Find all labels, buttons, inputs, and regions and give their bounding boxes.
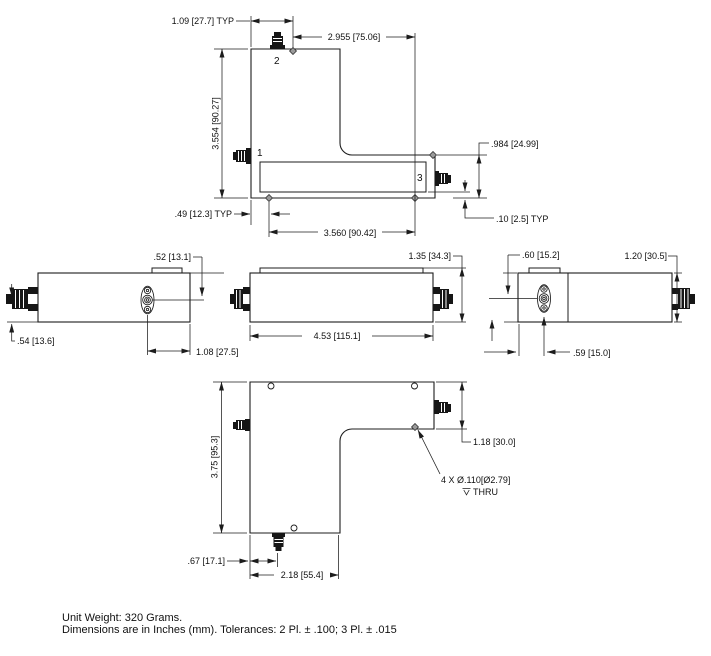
dimension-top-width: 2.955 [75.06] [293, 32, 415, 236]
side-view-left: .52 [13.1] .54 [13.6] 1.08 [27.5] [6, 252, 239, 357]
notes-block: Unit Weight: 320 Grams. Dimensions are i… [62, 612, 397, 636]
dimension-conn-offset: .59 [15.0] [484, 317, 611, 358]
sma-connector-side [230, 287, 250, 311]
dimension-conn-offset: .67 [17.1] [187, 535, 277, 579]
feedthru-connector-face [538, 285, 551, 313]
hole-note-line1: 4 X Ø.110[Ø2.79] [441, 475, 510, 485]
dimension-conn-top: .60 [15.2] [503, 250, 560, 294]
side-view-center: 1.35 [34.3] 4.53 [115.1] [230, 251, 466, 341]
body-outline [250, 273, 433, 322]
hole-marker [266, 195, 273, 202]
screw-hole [412, 383, 418, 389]
side-view-right: .60 [15.2] 1.20 [30.5] .59 [15.0] [484, 250, 695, 358]
dim-label: .54 [13.6] [17, 336, 55, 346]
dimension-hole-span: 3.560 [90.42] [269, 228, 415, 238]
sma-connector-bottom [272, 533, 285, 551]
note-unit-weight: Unit Weight: 320 Grams. [62, 612, 182, 624]
dim-label: 1.35 [34.3] [408, 251, 451, 261]
sma-connector-port1 [233, 148, 251, 164]
dim-label: .60 [15.2] [522, 250, 560, 260]
dim-label: 4.53 [115.1] [314, 331, 361, 341]
depth-symbol-icon [463, 489, 471, 495]
lid-tab [529, 268, 560, 273]
dim-label: .984 [24.99] [491, 139, 539, 149]
body-outline [38, 273, 190, 322]
port2-label: 2 [274, 56, 280, 67]
dim-label: .10 [2.5] TYP [496, 214, 548, 224]
dimension-hole-offset-typ: .49 [12.3] TYP [175, 200, 290, 237]
dimension-tab: .52 [13.1] [153, 252, 224, 296]
hole-note-line2: THRU [473, 487, 498, 497]
sma-connector-side [672, 288, 695, 310]
dim-label: 3.560 [90.42] [324, 228, 377, 238]
body-outline [250, 382, 434, 533]
sma-connector-side [433, 287, 453, 311]
port1-label: 1 [257, 148, 263, 159]
dimension-leg-width: 2.18 [55.4] [250, 535, 339, 580]
sma-connector-side [6, 287, 38, 311]
dim-label: 1.18 [30.0] [473, 437, 516, 447]
dim-label: 1.09 [27.7] TYP [172, 16, 234, 26]
dim-label: 2.18 [55.4] [281, 570, 324, 580]
dim-label: 3.554 [90.27] [211, 97, 221, 150]
sma-connector-left [233, 419, 250, 431]
drawing-canvas: 1 2 3 1.09 [27.7] TYP 2.955 [75.06] 3.55… [0, 0, 711, 656]
sma-connector-port3 [435, 171, 451, 186]
lid-tab [260, 268, 423, 273]
port3-label: 3 [417, 173, 423, 184]
screw-hole [268, 383, 274, 389]
dimension-height: 3.75 [95.3] [210, 382, 248, 533]
lid-tab [152, 268, 182, 273]
sma-connector-port2 [270, 32, 285, 49]
dim-label: 3.75 [95.3] [210, 436, 220, 479]
bottom-view: 3.75 [95.3] 1.18 [30.0] 4 X Ø.110[Ø2.79]… [187, 382, 515, 580]
dimension-height: 3.554 [90.27] [211, 49, 249, 198]
dim-label: .59 [15.0] [573, 348, 611, 358]
note-tolerances: Dimensions are in Inches (mm). Tolerance… [62, 624, 397, 636]
dimension-height: 1.35 [34.3] [408, 251, 466, 322]
dimension-conn-offset: 1.08 [27.5] [148, 315, 239, 357]
dimension-length: 4.53 [115.1] [250, 325, 433, 341]
body-outline [251, 49, 435, 198]
dimension-height: 1.20 [30.5] [624, 251, 682, 322]
dim-label: .67 [17.1] [187, 556, 225, 566]
screw-hole [291, 525, 297, 531]
dim-label: 2.955 [75.06] [328, 32, 381, 42]
drawing-page: 1 2 3 1.09 [27.7] TYP 2.955 [75.06] 3.55… [0, 0, 711, 656]
sma-connector-right [434, 400, 451, 414]
dimension-arm-height: 1.18 [30.0] [436, 382, 516, 447]
dimension-arm-height: .984 [24.99] [437, 139, 539, 198]
dim-label: 1.20 [30.5] [624, 251, 667, 261]
dim-label: .52 [13.1] [153, 252, 191, 262]
top-view: 1 2 3 1.09 [27.7] TYP 2.955 [75.06] 3.55… [172, 16, 549, 238]
lid-recess [260, 162, 426, 192]
dimension-edge-typ: .10 [2.5] TYP [428, 180, 548, 224]
dim-label: .49 [12.3] TYP [175, 209, 232, 219]
dim-label: 1.08 [27.5] [196, 347, 239, 357]
